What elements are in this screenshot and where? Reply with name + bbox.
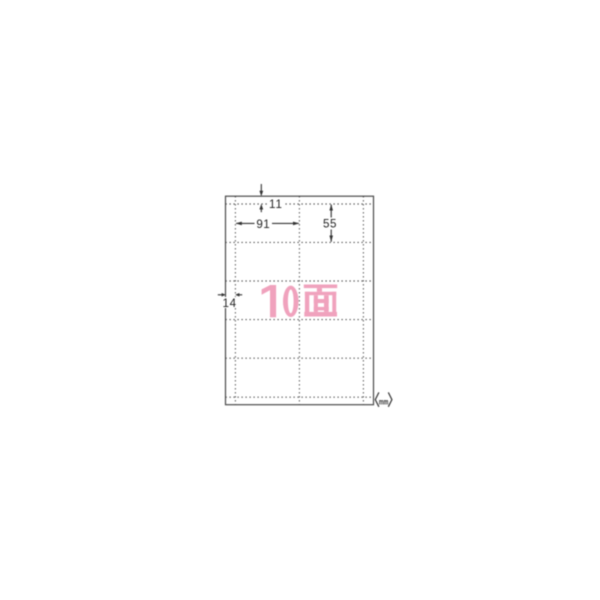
svg-text:55: 55 [323, 218, 337, 231]
svg-text:91: 91 [256, 218, 270, 231]
svg-text:mm: mm [379, 397, 388, 407]
svg-text:11: 11 [269, 198, 283, 211]
svg-text:14: 14 [222, 297, 236, 310]
